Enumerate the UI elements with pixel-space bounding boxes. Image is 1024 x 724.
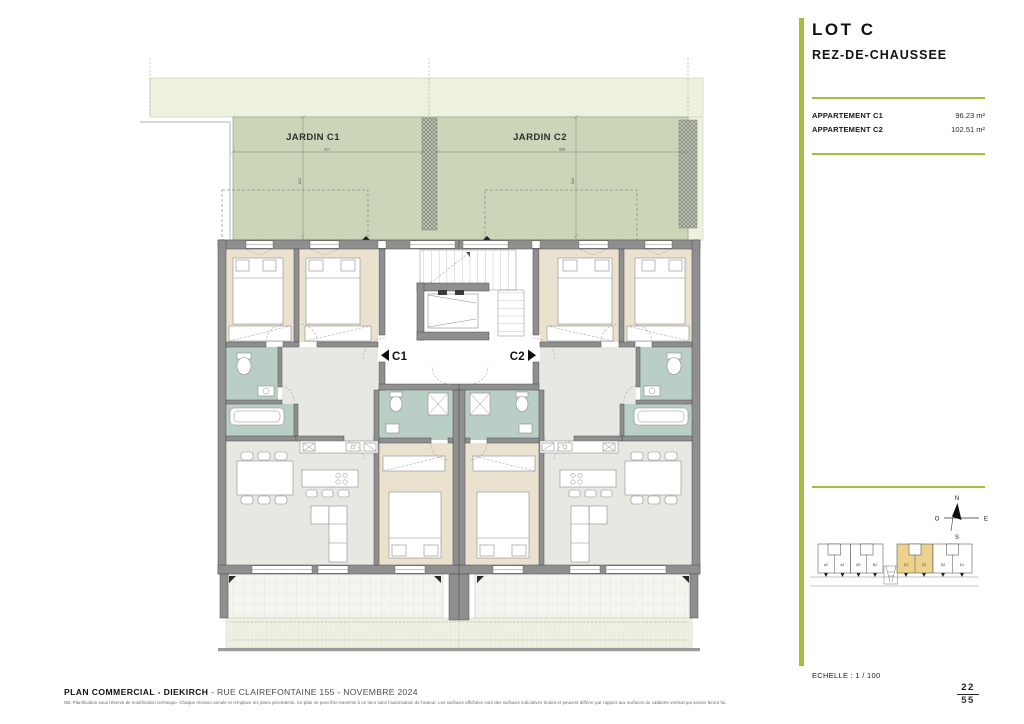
keyplan: A2 A1 B2 B1 C1 C2 D2 D1 [810, 544, 978, 586]
garden-c1-label: JARDIN C1 [286, 132, 340, 143]
entrance-c1-label: C1 [392, 351, 408, 363]
keyplan-unit-d2: D2 [941, 563, 945, 567]
bed-1 [233, 258, 283, 324]
lot-title: LOT C [812, 20, 876, 40]
keyplan-unit-a2: A2 [824, 563, 828, 567]
entrance-c2-label: C2 [510, 351, 525, 363]
keyplan-entrance-stair [884, 566, 898, 584]
compass-north: N [955, 495, 959, 502]
sidebar-rule-3 [812, 486, 985, 488]
sidebar-accent-bar [799, 18, 804, 666]
apartment-c2-mirror [459, 240, 700, 651]
plan-page: 917 955 610 610 JARDIN C1 JARDIN C2 [0, 0, 1024, 724]
elevator [428, 290, 478, 328]
footer-disclaimer: NB: Planification sous réserve de modifi… [64, 700, 727, 705]
apartment-c1-area: 96.23 m² [955, 111, 985, 120]
hedge-hatch-middle [422, 118, 437, 230]
floor-plan-drawing: 917 955 610 610 JARDIN C1 JARDIN C2 [0, 0, 1024, 724]
terrace [228, 574, 443, 618]
compass-east: E [984, 516, 988, 523]
garden-c1-width-dim: 917 [324, 147, 330, 151]
floor-title: REZ-DE-CHAUSSEE [812, 48, 947, 62]
compass-south: S [955, 534, 959, 541]
apartment-row-c1: APPARTEMENT C1 96.23 m² [812, 111, 985, 120]
kitchen-island [302, 470, 358, 487]
garden-strip [226, 618, 459, 648]
compass: N E S O [935, 495, 988, 541]
keyplan-unit-d1: D1 [960, 563, 964, 567]
keyplan-unit-b2: B2 [856, 563, 860, 567]
windows-bottom [252, 566, 425, 573]
site-boundary-line [140, 122, 230, 240]
stair-flight-right [498, 290, 524, 336]
page-current: 22 [957, 682, 979, 695]
apartment-c2-area: 102.51 m² [951, 125, 985, 134]
center-bed [389, 492, 441, 558]
keyplan-unit-b1: B1 [873, 563, 877, 567]
page-total: 55 [957, 695, 979, 707]
footer-title-bold: PLAN COMMERCIAL - DIEKIRCH [64, 687, 208, 697]
bed-2 [306, 258, 360, 324]
keyplan-unit-c1: C1 [904, 563, 908, 567]
compass-west: O [935, 516, 940, 523]
sidebar-rule-1 [812, 97, 985, 99]
apartment-c1-label: APPARTEMENT C1 [812, 111, 883, 120]
bathtub [230, 408, 284, 425]
page-number: 22 55 [957, 682, 979, 706]
scale-label: ECHELLE : 1 / 100 [812, 671, 880, 680]
garden-c2-width-dim: 955 [559, 147, 565, 151]
garden-c2-label: JARDIN C2 [513, 132, 567, 143]
dining-table [237, 452, 293, 504]
footer-title-rest: - RUE CLAIREFONTAINE 155 - NOVEMBRE 2024 [208, 687, 417, 697]
keyplan-unit-c2: C2 [922, 563, 926, 567]
sidebar-rule-2 [812, 153, 985, 155]
apartment-c2-label: APPARTEMENT C2 [812, 125, 883, 134]
garden-c2-depth-dim: 610 [571, 178, 575, 184]
garden-zone: 917 955 610 610 JARDIN C1 JARDIN C2 [140, 58, 703, 240]
garden-c1-depth-dim: 610 [298, 178, 302, 184]
apartment-row-c2: APPARTEMENT C2 102.51 m² [812, 125, 985, 134]
compass-needle-icon [952, 503, 962, 520]
keyplan-unit-a1: A1 [840, 563, 844, 567]
footer-title: PLAN COMMERCIAL - DIEKIRCH - RUE CLAIREF… [64, 687, 418, 697]
